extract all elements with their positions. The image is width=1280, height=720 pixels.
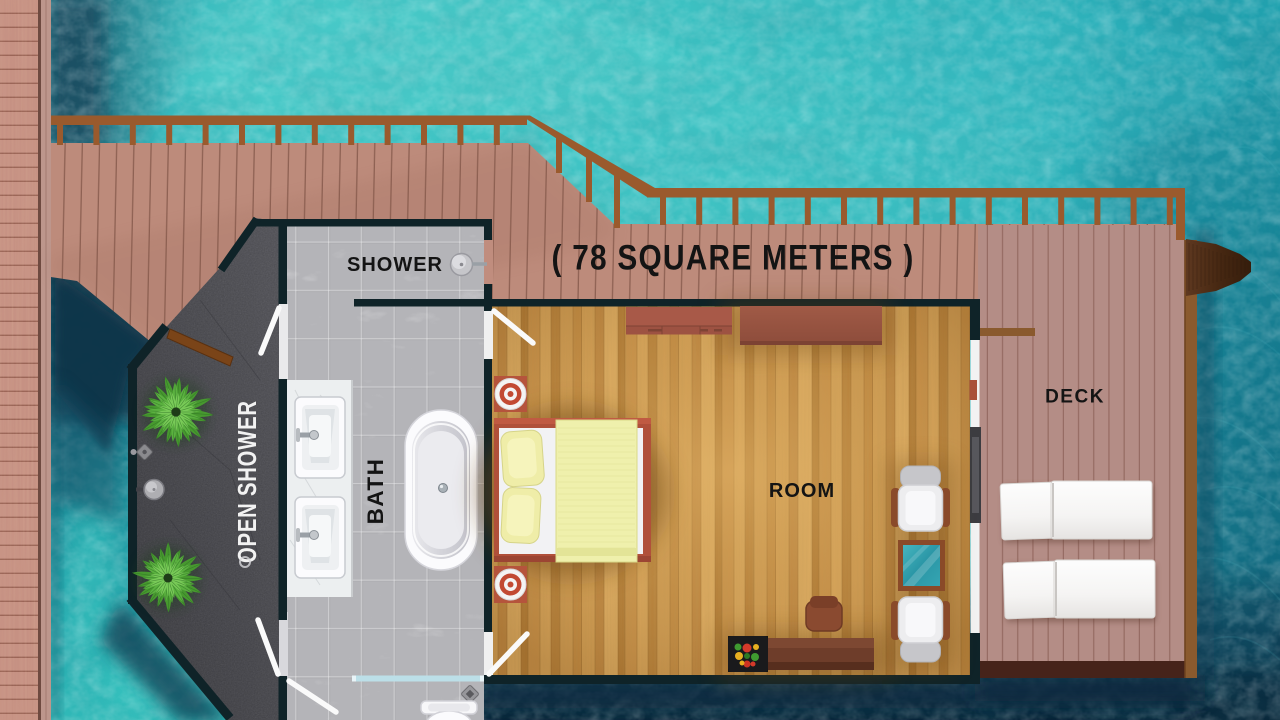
svg-text:BATH: BATH: [363, 458, 388, 525]
svg-text:DECK: DECK: [1045, 387, 1105, 408]
svg-text:OPEN SHOWER: OPEN SHOWER: [233, 400, 262, 563]
svg-text:( 78 SQUARE METERS ): ( 78 SQUARE METERS ): [551, 237, 914, 277]
svg-text:SHOWER: SHOWER: [347, 254, 443, 276]
svg-text:ROOM: ROOM: [769, 480, 835, 502]
